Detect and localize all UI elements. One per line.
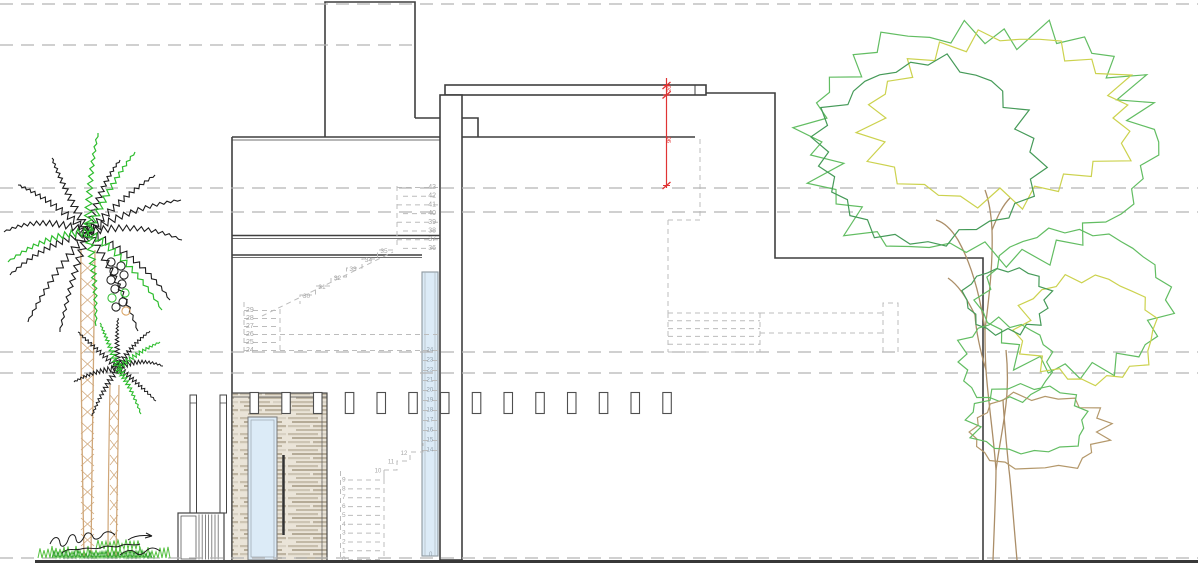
palm-trunk-hatch: [110, 410, 118, 420]
stair-number: 20: [427, 388, 434, 394]
hidden-dash: [300, 250, 393, 304]
vent-slot: [663, 393, 672, 414]
palm-frond: [116, 368, 141, 414]
tree-canopy-outline: [793, 20, 1159, 267]
stair-number: 2: [342, 538, 346, 545]
stair-number: 40: [428, 210, 436, 217]
palm-frond: [8, 228, 88, 262]
vent-slot: [631, 393, 640, 414]
tree-canopy-outline: [1013, 275, 1157, 386]
stair-number: 4: [342, 521, 346, 528]
hidden-stair-lines: 4342414039383736353433323130292827262524…: [244, 139, 898, 563]
stair-number: 3: [342, 530, 346, 537]
palm-trunk-hatch: [81, 310, 94, 322]
palm-frond: [92, 368, 118, 416]
hidden-dash: [883, 303, 898, 352]
vent-slot: [250, 393, 259, 414]
stair-number: 37: [428, 236, 436, 243]
palm-fruit: [121, 289, 129, 297]
stair-number: 15: [427, 438, 434, 444]
vent-slot: [536, 393, 545, 414]
palm-trunk-hatch: [81, 374, 94, 386]
palm-trunk-hatch: [81, 406, 94, 418]
palm-frond: [4, 221, 88, 234]
stair-number: 26: [246, 331, 254, 338]
palm-fruit: [119, 298, 127, 306]
vent-slot: [314, 393, 323, 414]
stair-number: 41: [428, 201, 436, 208]
palm-trunk-hatch: [110, 395, 118, 405]
palm-fruit: [107, 276, 115, 284]
stair-number: 16: [427, 428, 434, 434]
entry-posts: [190, 395, 227, 513]
palm-trunk-hatch: [81, 358, 94, 370]
stair-number: 39: [428, 219, 436, 226]
palm-frond: [78, 332, 118, 368]
stair-number: 31: [318, 284, 326, 291]
vent-slot: [568, 393, 577, 414]
stair-number: 1: [342, 547, 346, 554]
stair-number: 10: [375, 468, 382, 474]
palm-trunk: [108, 385, 110, 557]
stair-number: 42: [428, 193, 436, 200]
stair-number: 36: [428, 245, 436, 252]
palm-trunk-hatch: [81, 278, 94, 290]
tree-trunk: [948, 278, 975, 315]
elevation-drawing-canvas: 4342414039383736353433323130292827262524…: [0, 0, 1200, 565]
stair-number: 35: [380, 248, 388, 255]
stair-number: 29: [246, 307, 254, 314]
equipment-box: [178, 513, 224, 561]
tree-trunk: [992, 198, 1010, 230]
palm-frond: [88, 232, 170, 300]
vent-slot: [599, 393, 608, 414]
vent-slot: [472, 393, 481, 414]
vent-slot: [282, 393, 291, 414]
tree-canopy-outline: [811, 54, 1047, 246]
stair-number: 23: [427, 358, 434, 364]
section-wall: [440, 95, 462, 560]
post: [220, 395, 227, 513]
palm-trunk-hatch: [110, 455, 118, 465]
stair-tower: [325, 2, 415, 137]
post: [190, 395, 197, 513]
stair-number: 11: [388, 460, 395, 466]
stair-number: 14: [427, 448, 434, 454]
vent-slot: [409, 393, 418, 414]
tree-canopy-outline: [974, 228, 1175, 379]
hidden-dash: [262, 252, 393, 316]
stair-number: 32: [334, 275, 342, 282]
stair-number: 38: [428, 228, 436, 235]
palm-trunk-hatch: [110, 470, 118, 480]
stair-number: 33: [349, 266, 357, 273]
palm-fruit: [111, 285, 119, 293]
door-glass: [248, 417, 277, 560]
stair-number: 19: [427, 398, 434, 404]
palm-tree-small: [74, 318, 163, 557]
tree-canopy-outline: [856, 30, 1132, 209]
palm-trunk-hatch: [81, 294, 94, 306]
palm-fruit: [112, 303, 120, 311]
palm-fruit: [122, 307, 130, 315]
stair-number: 27: [246, 323, 254, 330]
stair-number: 24: [246, 347, 254, 354]
dimension-label: 90: [667, 137, 673, 143]
tree-trunk: [936, 220, 985, 330]
stair-number: 9: [342, 477, 346, 484]
dimension-label: 20: [667, 86, 673, 92]
stair-number: 6: [342, 503, 346, 510]
palm-fruit: [108, 294, 116, 302]
parapet-step-right: [462, 118, 478, 137]
palm-trunk-hatch: [110, 425, 118, 435]
elevation-svg: 4342414039383736353433323130292827262524…: [0, 0, 1200, 565]
palm-fruit: [120, 271, 128, 279]
palm-trunk-hatch: [81, 262, 94, 274]
vent-slot: [377, 393, 386, 414]
vent-slot: [504, 393, 513, 414]
stair-number: 34: [365, 257, 373, 264]
tree-trunk: [996, 350, 1007, 470]
vent-slot: [345, 393, 354, 414]
palm-trunk-hatch: [110, 440, 118, 450]
stair-number: 21: [427, 378, 434, 384]
palm-trunk-hatch: [81, 390, 94, 402]
scribble-path: [128, 533, 152, 540]
palm-frond: [118, 342, 160, 369]
stair-number: 25: [246, 339, 254, 346]
stair-number: 7: [342, 494, 346, 501]
palm-frond: [52, 158, 90, 232]
palm-fruit: [117, 262, 125, 270]
tree-canopy-outline: [969, 392, 1112, 469]
palm-fruit: [110, 267, 118, 275]
stair-number: 8: [342, 485, 346, 492]
stair-number: 30: [303, 293, 311, 300]
wood-clad-panel: [232, 393, 327, 562]
louver-slats: [199, 515, 218, 560]
stair-window: [422, 272, 438, 556]
stair-number: 5: [342, 512, 346, 519]
stair-number: 18: [427, 408, 434, 414]
stair-number: 28: [246, 315, 254, 322]
entry-area: [178, 272, 438, 562]
stair-number: 12: [401, 451, 408, 457]
tree-trunk: [985, 190, 992, 330]
vent-slot: [441, 393, 450, 414]
tree-trunk: [1003, 400, 1017, 560]
stair-number: 17: [427, 418, 434, 424]
palm-frond: [117, 331, 150, 368]
equipment-box-inner: [181, 516, 196, 559]
